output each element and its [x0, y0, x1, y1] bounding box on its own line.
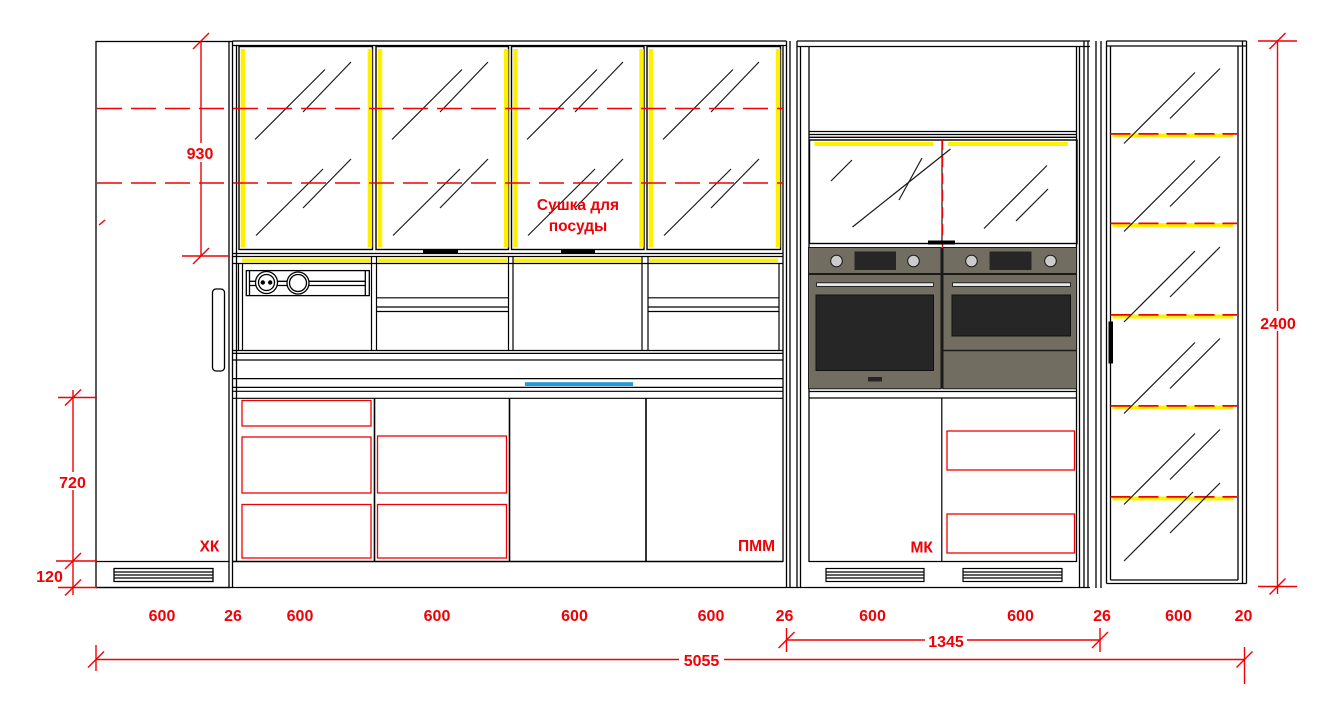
svg-text:600: 600 [149, 608, 176, 625]
svg-text:600: 600 [698, 608, 725, 625]
svg-text:600: 600 [561, 608, 588, 625]
svg-text:1345: 1345 [928, 634, 964, 651]
svg-text:ХК: ХК [200, 539, 220, 556]
svg-text:120: 120 [36, 569, 63, 586]
svg-text:5055: 5055 [684, 653, 720, 670]
svg-text:26: 26 [776, 608, 794, 625]
svg-text:26: 26 [1093, 608, 1111, 625]
svg-text:20: 20 [1235, 608, 1253, 625]
svg-text:600: 600 [424, 608, 451, 625]
svg-text:930: 930 [187, 146, 214, 163]
svg-text:600: 600 [1165, 608, 1192, 625]
svg-text:ПММ: ПММ [738, 538, 775, 555]
svg-text:600: 600 [1007, 608, 1034, 625]
svg-text:720: 720 [59, 475, 86, 492]
svg-text:МК: МК [911, 540, 934, 557]
svg-text:Сушка для: Сушка для [537, 197, 619, 214]
svg-text:посуды: посуды [549, 218, 608, 235]
svg-text:2400: 2400 [1260, 316, 1296, 333]
svg-text:26: 26 [224, 608, 242, 625]
svg-text:600: 600 [859, 608, 886, 625]
svg-text:600: 600 [287, 608, 314, 625]
